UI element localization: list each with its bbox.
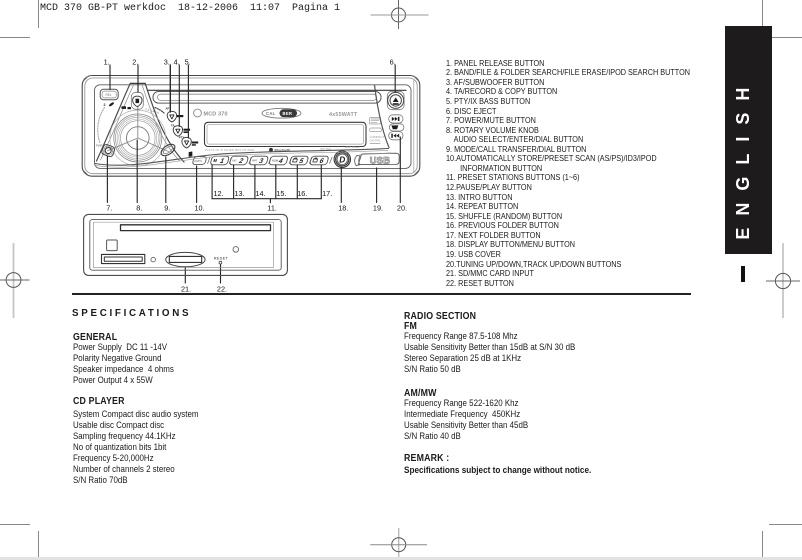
svg-text:PTY: PTY (179, 136, 185, 140)
svg-text:RESET: RESET (214, 256, 229, 261)
svg-text:10.: 10. (195, 203, 205, 212)
svg-text:15.: 15. (276, 189, 286, 198)
svg-text:6.: 6. (390, 58, 396, 67)
svg-text:18.: 18. (338, 203, 348, 212)
svg-text:14.: 14. (255, 189, 265, 198)
svg-text:8.: 8. (136, 203, 142, 212)
svg-text:17.: 17. (322, 189, 332, 198)
svg-text:D: D (339, 154, 345, 164)
svg-text:CAL: CAL (266, 111, 276, 116)
svg-text:2.: 2. (132, 58, 138, 67)
svg-text:7.: 7. (106, 203, 112, 212)
svg-text:11.: 11. (267, 203, 277, 212)
svg-text:13.: 13. (234, 189, 244, 198)
svg-text:19.: 19. (373, 203, 383, 212)
svg-text:AS/PS: AS/PS (194, 159, 203, 163)
svg-text:5: 5 (298, 158, 304, 165)
svg-text:DIGITAL: DIGITAL (370, 139, 382, 143)
svg-text:TA: TA (171, 124, 175, 128)
svg-text:2: 2 (237, 158, 244, 165)
svg-text:5.: 5. (185, 58, 191, 67)
svg-text:USB: USB (370, 155, 391, 165)
svg-text:1: 1 (219, 158, 225, 165)
svg-text:21.: 21. (181, 285, 191, 294)
svg-text:3: 3 (258, 158, 264, 165)
svg-text:4x55WATT: 4x55WATT (329, 112, 358, 118)
svg-text:BER: BER (283, 111, 293, 116)
svg-text:RPT: RPT (252, 159, 259, 163)
svg-text:9.: 9. (164, 203, 170, 212)
svg-text:INT: INT (232, 159, 238, 163)
svg-text:16.: 16. (297, 189, 307, 198)
svg-text:3.: 3. (164, 58, 170, 67)
svg-text:PLAYS CD-R CD-RW MP3 CD: PLAYS CD-R CD-RW MP3 CD WMA (205, 148, 255, 152)
svg-text:AF: AF (166, 107, 170, 111)
svg-text:4.: 4. (174, 58, 180, 67)
svg-text:MCD 370: MCD 370 (204, 112, 228, 118)
svg-text:20.: 20. (397, 203, 407, 212)
svg-text:PWR: PWR (96, 144, 103, 148)
svg-text:12.: 12. (214, 189, 224, 198)
svg-text:ESP 40sec: ESP 40sec (345, 145, 360, 149)
svg-text:6: 6 (319, 158, 325, 165)
svg-text:REL: REL (106, 93, 112, 97)
svg-text:1.: 1. (104, 58, 110, 67)
svg-text:22.: 22. (217, 285, 227, 294)
svg-text:2: 2 (104, 103, 106, 107)
